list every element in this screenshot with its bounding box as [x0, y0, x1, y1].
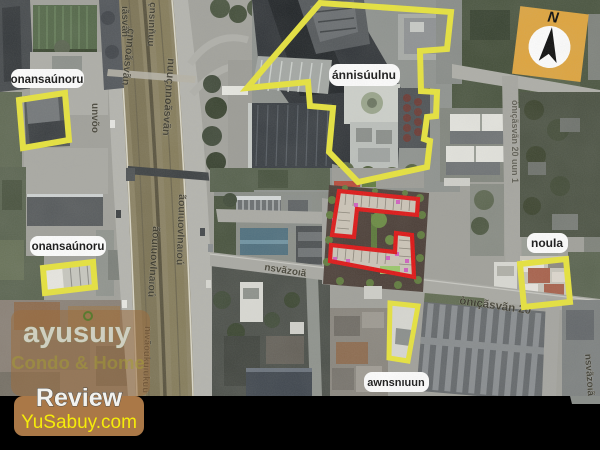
svg-text:Review: Review	[36, 384, 123, 412]
svg-text:ayusuıy: ayusuıy	[23, 317, 131, 349]
svg-text:YuSabuy.com: YuSabuy.com	[21, 412, 137, 433]
svg-text:Condo & Home: Condo & Home	[11, 352, 145, 373]
